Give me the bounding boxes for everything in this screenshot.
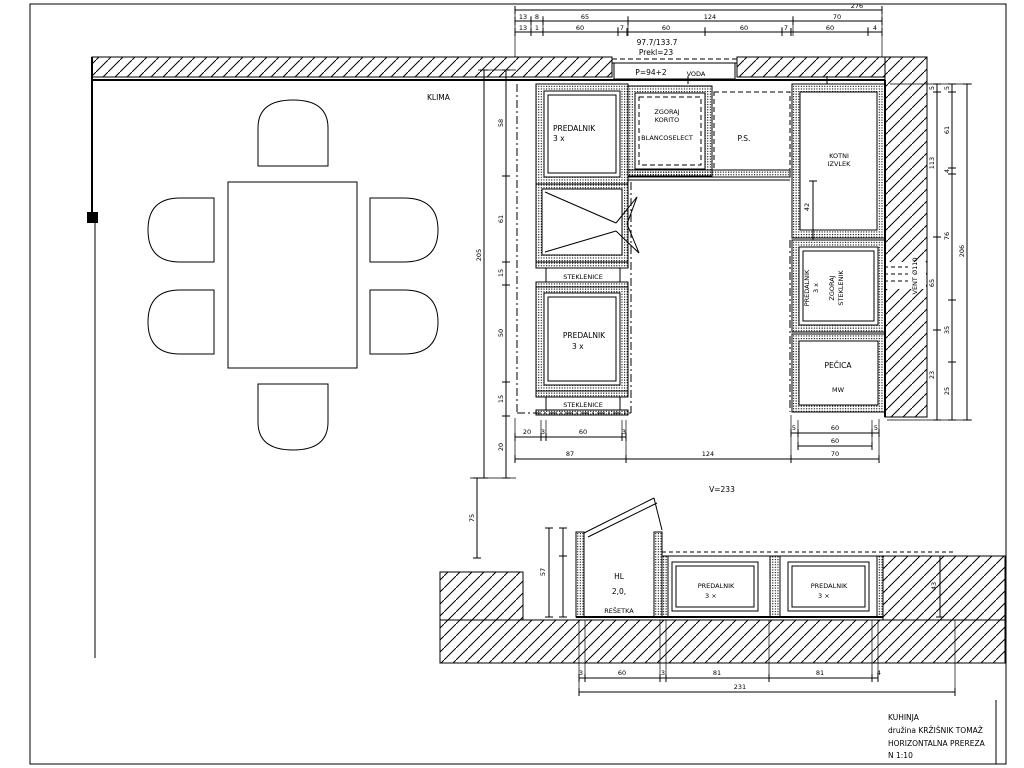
section-step (440, 572, 523, 620)
dim-label: 60 (831, 437, 839, 445)
title-project: KUHINJA (888, 713, 920, 722)
dim-label: 5 (792, 424, 796, 432)
cabinet-label: 3 x (572, 342, 584, 351)
section-label: 3 × (705, 592, 717, 600)
dim-label: 87 (566, 450, 574, 458)
dim-label: 20 (497, 443, 505, 451)
note-dim: 97.7/133.7 (637, 38, 678, 47)
dim-label: 5 (874, 424, 878, 432)
dim-label: 113 (928, 157, 936, 169)
dim-label: 25 (943, 387, 951, 395)
note-v: V=233 (709, 485, 735, 494)
dim-label: 124 (702, 450, 714, 458)
dim-label: 7 (620, 24, 624, 32)
cabinet-label: PEČICA (824, 361, 852, 370)
note-prekl: Prekl=23 (639, 48, 673, 57)
dim-label: 3 (661, 669, 665, 677)
dim-label: 4 (873, 24, 877, 32)
dim-label: 58 (497, 119, 505, 127)
note-klima: KLIMA (427, 93, 451, 102)
section-divider (770, 556, 780, 617)
dim-label: 61 (943, 126, 951, 134)
section-label: REŠETKA (604, 606, 634, 615)
section-label: 3 × (818, 592, 830, 600)
cabinet-label: PREDALNIK (563, 331, 606, 340)
cabinet-label: IZVLEK (828, 160, 852, 168)
shelf-label: STEKLENICE (563, 401, 603, 409)
cabinet-label: PREDALNIK (553, 124, 596, 133)
section-label: PREDALNIK (811, 582, 848, 590)
cabinet-label: P.S. (738, 134, 751, 143)
cabinet-pecica (792, 334, 885, 412)
dim-label: 13 (519, 13, 527, 21)
dim-label: 124 (704, 13, 716, 21)
vent (884, 262, 926, 289)
dim-label: 206 (958, 245, 966, 257)
counter-edge-top-run (628, 170, 790, 177)
dim-label: 60 (740, 24, 748, 32)
dim-label: 5 (943, 86, 951, 90)
cabinet-label: MW (832, 386, 845, 394)
dim-label: 23 (928, 371, 936, 379)
cabinet-label: PREDALNIK (803, 269, 811, 306)
note-vent: VENT Ø110 (911, 258, 919, 295)
dim-label: 43 (930, 582, 938, 590)
dim-label: 60 (576, 24, 584, 32)
dim-label: 8 (535, 13, 539, 21)
dim-label: 231 (734, 683, 746, 691)
cabinet-label: KOTNI (829, 152, 849, 160)
dim-label: 42 (803, 203, 811, 211)
dim-label: 3 (579, 669, 583, 677)
dim-label: 76 (943, 232, 951, 240)
cabinet-label: STEKLENIK (837, 270, 845, 306)
dim-label: 75 (468, 514, 476, 522)
dim-label: 65 (581, 13, 589, 21)
cabinet-corner (536, 184, 639, 262)
cabinet-label: ZGORAJ (654, 108, 679, 116)
title-drawing: HORIZONTALNA PREREZA (888, 739, 986, 748)
section-ground (440, 620, 1005, 663)
dim-label: 61 (497, 215, 505, 223)
window-sill (614, 63, 735, 79)
note-voda: VODA (687, 70, 706, 78)
cabinet-label: BLANCOSELECT (641, 134, 693, 142)
shelf-label: STEKLENICE (563, 273, 603, 281)
wall-top-right (737, 57, 885, 77)
dim-label: 60 (579, 428, 587, 436)
dim-label: 3 (541, 428, 545, 436)
dim-label: 5 (928, 86, 936, 90)
dim-label: 20 (523, 428, 531, 436)
section-label: HL (614, 572, 625, 581)
wall-left-pier (87, 212, 98, 223)
cabinet-label: 3 x (812, 283, 820, 293)
wall-top-left (92, 57, 612, 77)
dim-label: 50 (497, 329, 505, 337)
dim-label: 7 (784, 24, 788, 32)
cabinet-sink (628, 86, 712, 176)
dim-label: 57 (539, 568, 547, 576)
cabinet-label: 3 x (553, 134, 565, 143)
dim-label: 205 (475, 249, 483, 261)
cad-kitchen-drawing: 276 13 8 65 124 70 13 1 60 7 60 60 7 60 … (0, 0, 1024, 768)
dim-label: 3 (622, 428, 626, 436)
dim-label: 60 (831, 424, 839, 432)
dim-label: 60 (618, 669, 626, 677)
dim-label: 276 (851, 2, 863, 10)
dim-label: 4 (943, 169, 951, 173)
dim-label: 1 (535, 24, 539, 32)
section-label: 2,0, (612, 587, 626, 596)
dim-label: 15 (497, 269, 505, 277)
dim-label: 60 (826, 24, 834, 32)
dim-label: 65 (928, 279, 936, 287)
title-client: družina KRŽIŠNIK TOMAŽ (888, 726, 983, 735)
dim-label: 4 (877, 669, 881, 677)
dim-label: 15 (497, 395, 505, 403)
dim-label: 70 (831, 450, 839, 458)
cabinet-label: KORITO (655, 116, 680, 124)
section-label: PREDALNIK (698, 582, 735, 590)
note-p: P=94+2 (635, 68, 667, 77)
dim-label: 13 (519, 24, 527, 32)
dim-label: 81 (713, 669, 721, 677)
dim-label: 60 (662, 24, 670, 32)
cabinet-label: ZGORAJ (828, 275, 836, 300)
title-scale: N 1:10 (888, 751, 913, 760)
wall-right (885, 57, 927, 417)
dim-label: 70 (833, 13, 841, 21)
dim-label: 81 (816, 669, 824, 677)
section-right-wall (883, 556, 1005, 620)
dim-label: 35 (943, 326, 951, 334)
cabinet-predalnik-top (536, 84, 628, 184)
